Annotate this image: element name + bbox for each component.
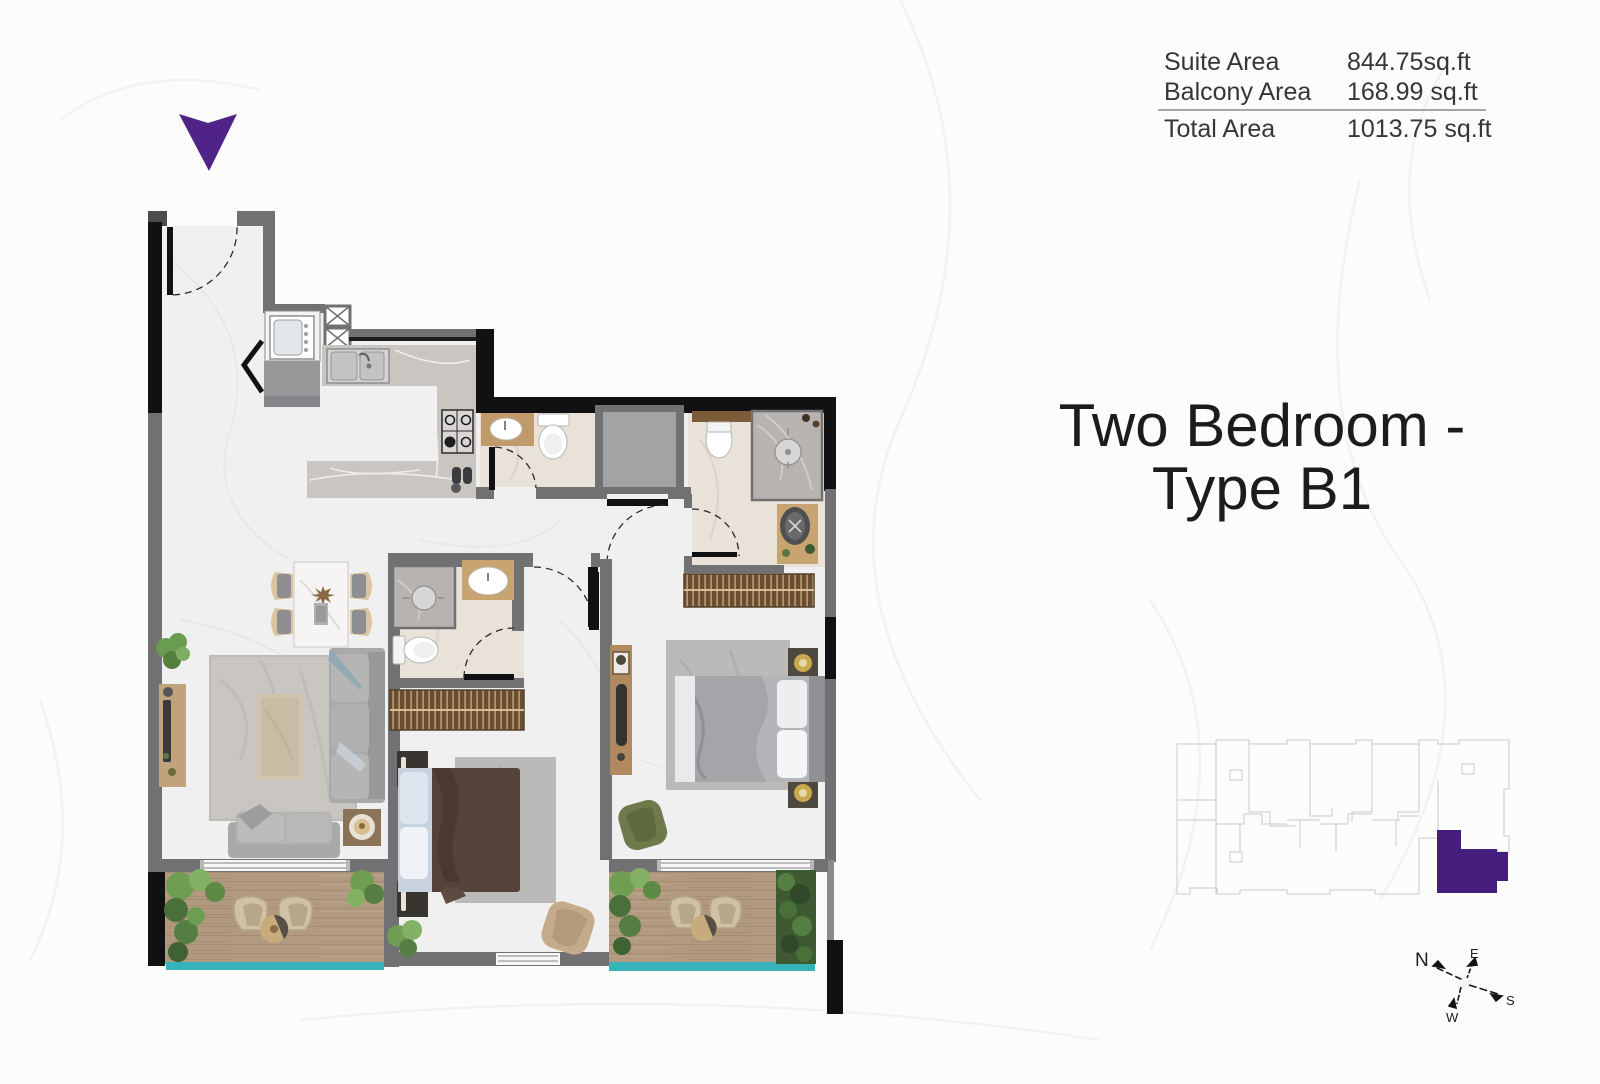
svg-text:Balcony Area: Balcony Area [1164,78,1311,106]
svg-text:Suite Area: Suite Area [1164,48,1279,76]
svg-text:Total Area: Total Area [1164,115,1275,143]
svg-text:844.75sq.ft: 844.75sq.ft [1347,48,1471,76]
svg-text:N: N [1415,950,1429,971]
svg-text:Two Bedroom -: Two Bedroom - [1059,392,1466,459]
svg-text:W: W [1446,1010,1459,1025]
svg-text:S: S [1506,993,1515,1008]
svg-text:Type B1: Type B1 [1152,455,1372,522]
svg-text:168.99 sq.ft: 168.99 sq.ft [1347,78,1478,106]
svg-text:1013.75 sq.ft: 1013.75 sq.ft [1347,115,1492,143]
